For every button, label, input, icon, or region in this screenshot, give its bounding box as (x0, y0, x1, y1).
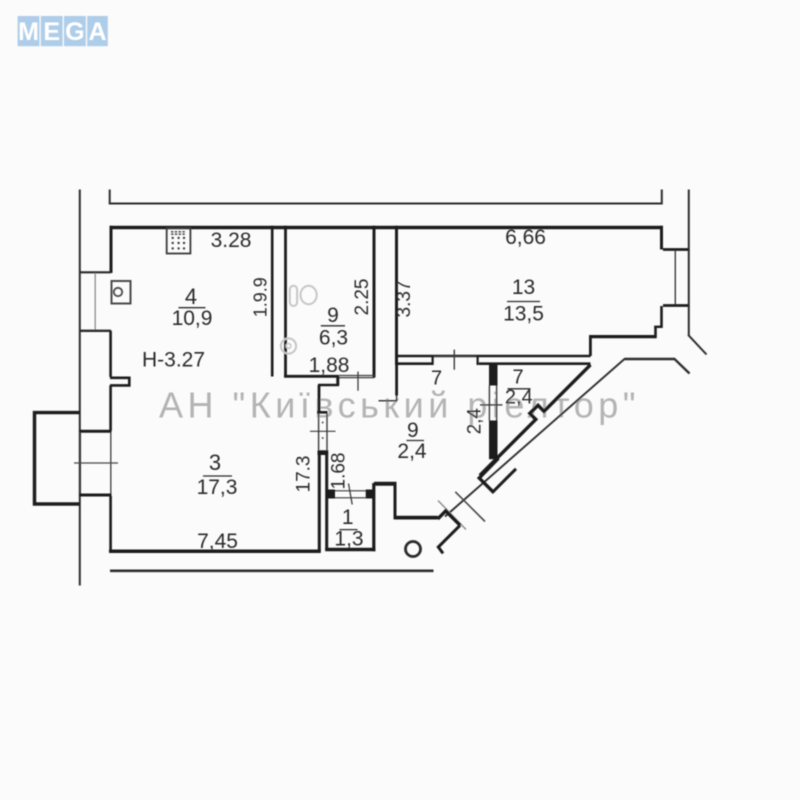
svg-text:13: 13 (512, 276, 535, 299)
svg-text:1,3: 1,3 (334, 528, 363, 551)
svg-text:2,4: 2,4 (397, 440, 427, 463)
svg-text:2.25: 2.25 (352, 279, 373, 316)
svg-text:7,45: 7,45 (197, 530, 238, 553)
svg-text:A: A (88, 18, 106, 46)
svg-text:1.68: 1.68 (329, 453, 350, 490)
svg-text:6,3: 6,3 (319, 327, 348, 350)
svg-text:13,5: 13,5 (503, 303, 544, 326)
svg-text:10,9: 10,9 (172, 307, 213, 330)
svg-text:9: 9 (327, 304, 339, 327)
svg-text:2,4: 2,4 (505, 387, 533, 409)
svg-text:E: E (43, 18, 60, 46)
svg-text:1,88: 1,88 (309, 354, 350, 377)
svg-text:1: 1 (342, 506, 354, 529)
svg-text:17.3: 17.3 (294, 456, 315, 493)
svg-text:3: 3 (209, 450, 221, 475)
svg-text:АН "Київський ріелтор": АН "Київський ріелтор" (159, 385, 640, 426)
svg-text:7: 7 (512, 367, 523, 389)
svg-text:G: G (65, 18, 84, 46)
svg-text:17,3: 17,3 (197, 476, 238, 499)
svg-text:3.37: 3.37 (394, 281, 415, 318)
svg-text:Н-3.27: Н-3.27 (142, 349, 205, 372)
svg-text:1.9.9: 1.9.9 (251, 277, 271, 317)
svg-text:7: 7 (431, 368, 442, 390)
svg-text:3.28: 3.28 (211, 229, 252, 252)
svg-text:6,66: 6,66 (505, 226, 546, 249)
svg-text:4: 4 (185, 284, 197, 309)
svg-text:2,4: 2,4 (465, 408, 486, 435)
svg-text:9: 9 (407, 419, 419, 442)
svg-text:M: M (18, 18, 39, 46)
